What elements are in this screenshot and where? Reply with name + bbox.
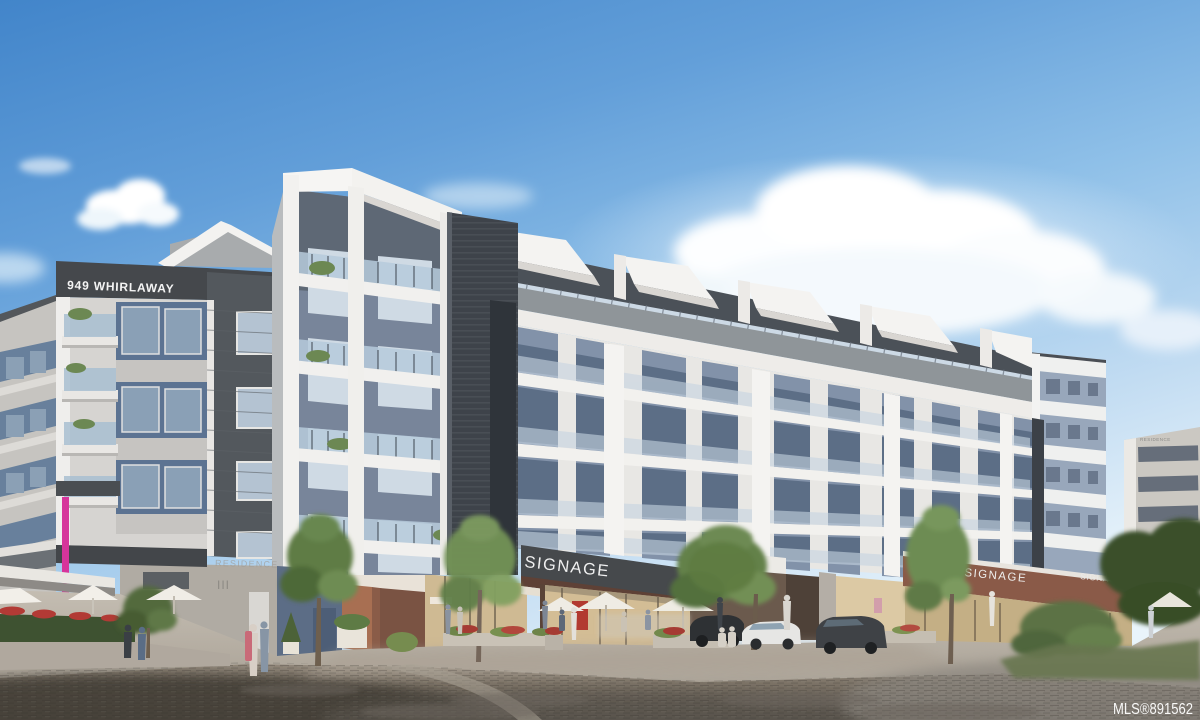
svg-text:MLS®891562: MLS®891562 xyxy=(1113,701,1193,718)
svg-text:RESIDENCE: RESIDENCE xyxy=(1140,437,1171,442)
svg-text:III: III xyxy=(217,578,230,592)
svg-text:RESIDENCE: RESIDENCE xyxy=(215,558,279,570)
